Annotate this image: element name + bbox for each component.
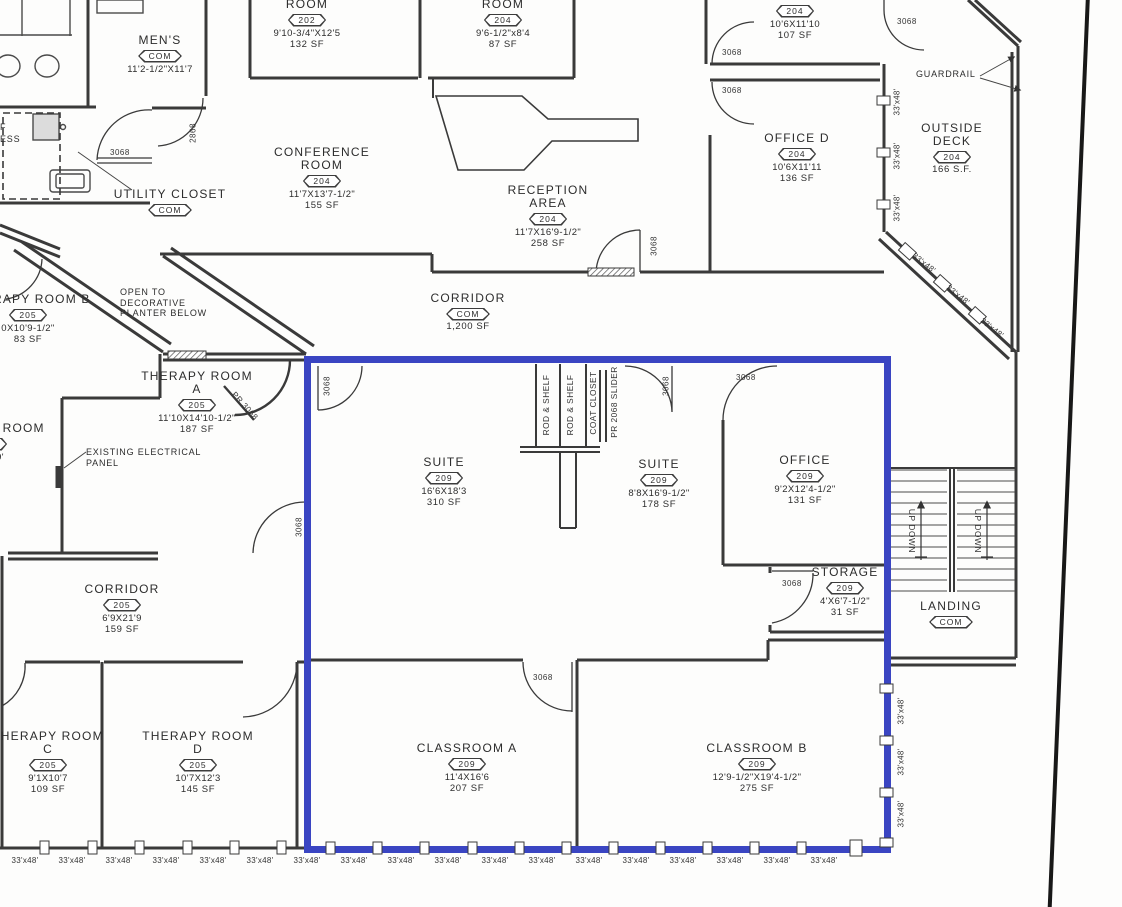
- room-label-classroom-b: CLASSROOM B 209 12'9-1/2"X19'4-1/2" 275 …: [687, 742, 827, 794]
- window-label: 33'x48': [576, 856, 603, 865]
- text-layer: MEN'S COM 11'2-1/2"X11'7 ROOM 202 9'10-3…: [0, 0, 1122, 907]
- room-label-reception: RECEPTION AREA 204 11'7X16'9-1/2" 258 SF: [488, 184, 608, 249]
- window-label: 33'x48': [482, 856, 509, 865]
- room-label-storage-room: STORAGE ROOM 205 7'2"X9' SF: [0, 422, 58, 474]
- door-label-suite-a-3068: 3068: [323, 376, 332, 396]
- window-label: 33'x48': [945, 283, 972, 307]
- window-label: 33'x48': [153, 856, 180, 865]
- window-label: 33'x48': [106, 856, 133, 865]
- window-label: 33'x48': [59, 856, 86, 865]
- window-label: 33'x48': [341, 856, 368, 865]
- door-label-2868: 2868: [189, 123, 198, 143]
- room-label-suite-b: SUITE 209 8'8X16'9-1/2" 178 SF: [599, 458, 719, 510]
- rod-shelf-label-2: ROD & SHELF: [565, 375, 575, 436]
- room-label-conference: CONFERENCE ROOM 204 11'7X13'7-1/2" 155 S…: [262, 146, 382, 211]
- window-label: 33'x48': [911, 251, 938, 275]
- door-label-storage209-3068: 3068: [782, 579, 802, 588]
- door-label-officed-upper-3068: 3068: [722, 48, 742, 57]
- slider-door-label: PR 2068 SLIDER: [609, 366, 619, 438]
- window-label: 33'x48': [897, 698, 906, 725]
- room-label-204-87sf: ROOM 204 9'6-1/2"x8'4 87 SF: [453, 0, 553, 50]
- room-label-utility-closet: UTILITY CLOSET COM: [110, 188, 230, 217]
- stairs-updown-label-1: UP DOWN: [907, 509, 917, 553]
- room-label-corridor-com: CORRIDOR COM 1,200 SF: [408, 292, 528, 332]
- rod-shelf-label-1: ROD & SHELF: [541, 375, 551, 436]
- room-label-therapy-c: THERAPY ROOM C 205 9'1X10'7 109 SF: [0, 730, 108, 795]
- window-label: 33'x48': [893, 195, 902, 222]
- edge-fragment-2: ESS: [0, 134, 20, 145]
- window-label: 33'x48': [717, 856, 744, 865]
- door-label-suite-b-3068: 3068: [662, 376, 671, 396]
- window-label: 33'x48': [200, 856, 227, 865]
- window-label: 33'x48': [811, 856, 838, 865]
- door-label-utility-3068: 3068: [110, 148, 130, 157]
- door-label-corridor-3068: 3068: [650, 236, 659, 256]
- room-label-mens: MEN'S COM 11'2-1/2"X11'7: [110, 34, 210, 75]
- window-label: 33'x48': [529, 856, 556, 865]
- room-label-storage-209: STORAGE 209 4'X6'7-1/2" 31 SF: [785, 566, 905, 618]
- window-label: 33'x48': [670, 856, 697, 865]
- window-label: 33'x48': [897, 749, 906, 776]
- door-label-corridor205-3068: 3068: [295, 517, 304, 537]
- floor-plan: MEN'S COM 11'2-1/2"X11'7 ROOM 202 9'10-3…: [0, 0, 1122, 907]
- electrical-panel-note: EXISTING ELECTRICAL PANEL: [86, 447, 201, 468]
- window-label: 33'x48': [893, 89, 902, 116]
- room-label-therapy-b: THERAPY ROOM B 205 0X10'9-1/2" 83 SF: [0, 293, 98, 345]
- door-label-deck-3068: 3068: [897, 17, 917, 26]
- window-label: 33'x48': [623, 856, 650, 865]
- window-label: 33'x48': [435, 856, 462, 865]
- door-label-office209-3068: 3068: [736, 373, 756, 382]
- room-label-204-107sf: 204 10'6X11'10 107 SF: [745, 2, 845, 41]
- stairs-updown-label-2: UP DOWN: [973, 509, 983, 553]
- window-label: 33'x48': [388, 856, 415, 865]
- room-label-office-d: OFFICE D 204 10'6X11'11 136 SF: [737, 132, 857, 184]
- door-label-officed-lower-3068: 3068: [722, 86, 742, 95]
- room-label-corridor-205: CORRIDOR 205 6'9X21'9 159 SF: [62, 583, 182, 635]
- edge-fragment-1: F: [0, 122, 6, 133]
- window-label: 33'x48': [893, 143, 902, 170]
- window-label: 33'x48': [247, 856, 274, 865]
- room-label-landing: LANDING COM: [901, 600, 1001, 629]
- window-label: 33'x48': [294, 856, 321, 865]
- window-label: 33'x48': [12, 856, 39, 865]
- room-label-202: ROOM 202 9'10-3/4"X12'5 132 SF: [257, 0, 357, 50]
- room-label-outside-deck: OUTSIDE DECK 204 166 S.F.: [902, 122, 1002, 175]
- window-label: 33'x48': [979, 316, 1006, 340]
- guardrail-note: GUARDRAIL: [916, 69, 976, 80]
- room-label-therapy-d: THERAPY ROOM D 205 10'7X12'3 145 SF: [138, 730, 258, 795]
- window-label: 33'x48': [764, 856, 791, 865]
- window-label: 33'x48': [897, 801, 906, 828]
- room-label-suite-a: SUITE 209 16'6X18'3 310 SF: [394, 456, 494, 508]
- coat-closet-label: COAT CLOSET: [588, 371, 598, 434]
- room-label-classroom-a: CLASSROOM A 209 11'4X16'6 207 SF: [397, 742, 537, 794]
- door-label-classroom-3068: 3068: [533, 673, 553, 682]
- room-label-office-209: OFFICE 209 9'2X12'4-1/2" 131 SF: [745, 454, 865, 506]
- planter-note: OPEN TO DECORATIVE PLANTER BELOW: [120, 287, 207, 319]
